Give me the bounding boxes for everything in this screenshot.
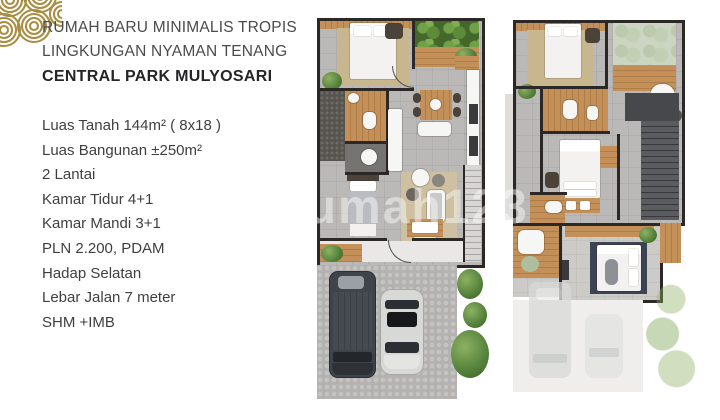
ghost-tree (643, 276, 699, 392)
spec-hadap: Hadap Selatan (42, 262, 310, 287)
ghost-windshield (533, 354, 567, 363)
windshield (333, 352, 372, 362)
first-floor-plan (317, 14, 490, 406)
pebble-floor (320, 91, 345, 161)
header-line-2: LINGKUNGAN NYAMAN TENANG (42, 40, 310, 64)
stair-landing (625, 93, 679, 121)
foot-cabinet (560, 198, 600, 213)
info-panel: RUMAH BARU MINIMALIS TROPIS LINGKUNGAN N… (0, 0, 312, 420)
spec-pln-pdam: PLN 2.200, PDAM (42, 237, 310, 262)
wall (540, 89, 543, 194)
stove (469, 104, 478, 124)
kitchen-island (418, 122, 451, 136)
header-block: RUMAH BARU MINIMALIS TROPIS LINGKUNGAN N… (42, 16, 310, 89)
pillow (350, 181, 376, 191)
bed-foot (350, 224, 376, 236)
pouf (406, 188, 419, 201)
desk (562, 260, 569, 280)
plant (321, 245, 343, 262)
throw-blanket (605, 259, 618, 285)
master-bed (597, 245, 641, 291)
pillow (629, 269, 638, 286)
towels (566, 201, 576, 210)
spec-kamar-tidur: Kamar Tidur 4+1 (42, 188, 310, 213)
bed-blanket (350, 191, 376, 224)
spec-kamar-mandi: Kamar Mandi 3+1 (42, 212, 310, 237)
counter (388, 109, 402, 171)
pillow (354, 26, 371, 36)
pillow (548, 27, 561, 36)
spec-list: Luas Tanah 144m² ( 8x18 ) Luas Bangunan … (42, 114, 310, 335)
desk-chair (545, 172, 559, 188)
lounge-chair (518, 230, 544, 254)
pillow (629, 249, 638, 266)
toilet (363, 112, 376, 129)
windshield (385, 342, 419, 353)
cabinet (455, 56, 479, 70)
suv-car (330, 272, 375, 377)
hedge-garden (415, 21, 479, 47)
dining-chair (453, 93, 461, 103)
stairs (463, 165, 481, 262)
fridge (469, 136, 478, 156)
cabinet (600, 146, 617, 168)
rear-window (385, 300, 419, 309)
pillow (564, 27, 577, 36)
plant (639, 227, 657, 243)
header-line-1: RUMAH BARU MINIMALIS TROPIS (42, 16, 310, 40)
sofa-cushion (430, 193, 442, 219)
sofa (427, 190, 445, 222)
spec-luas-bangunan: Luas Bangunan ±250m² (42, 139, 310, 164)
dining-chair (413, 107, 421, 117)
washer (361, 149, 377, 165)
bed (560, 140, 600, 198)
chair (585, 28, 600, 43)
spec-shm-imb: SHM +IMB (42, 311, 310, 336)
side-deck (660, 223, 681, 263)
wall (617, 134, 620, 220)
bush (457, 269, 483, 299)
sink (348, 93, 359, 103)
plate (430, 99, 441, 110)
pillow (564, 182, 596, 189)
ghost-suv (529, 282, 571, 378)
ghost-windshield (589, 348, 619, 357)
dining-chair (453, 107, 461, 117)
stairs (641, 121, 679, 220)
pillow (564, 190, 596, 196)
toilet (545, 201, 562, 213)
second-floor-plan (505, 14, 705, 406)
towels (580, 201, 590, 210)
tree (451, 330, 489, 378)
suv-roof (333, 292, 372, 350)
pouf (432, 174, 445, 187)
spec-luas-tanah: Luas Tanah 144m² ( 8x18 ) (42, 114, 310, 139)
wall (605, 23, 608, 89)
flyer-canvas: RUMAH BARU MINIMALIS TROPIS LINGKUNGAN N… (0, 0, 720, 420)
bush (463, 302, 487, 328)
spec-lantai: 2 Lantai (42, 163, 310, 188)
wall (543, 131, 610, 134)
spec-lebar-jalan: Lebar Jalan 7 meter (42, 286, 310, 311)
chair (385, 23, 403, 39)
bench (407, 219, 443, 237)
roof-box (338, 276, 364, 289)
hood (332, 363, 373, 375)
green-roof (613, 23, 676, 65)
sink (587, 106, 598, 120)
bed (545, 24, 581, 78)
ghost-car (585, 314, 623, 378)
bench-cushion (412, 222, 438, 233)
round-rug (521, 256, 539, 272)
sunroof (387, 312, 417, 327)
sedan-car (381, 290, 423, 374)
toilet (563, 100, 577, 119)
page-title: CENTRAL PARK MULYOSARI (42, 64, 310, 89)
dining-chair (413, 93, 421, 103)
ghost-roof-box (536, 288, 562, 300)
hood (384, 355, 420, 369)
